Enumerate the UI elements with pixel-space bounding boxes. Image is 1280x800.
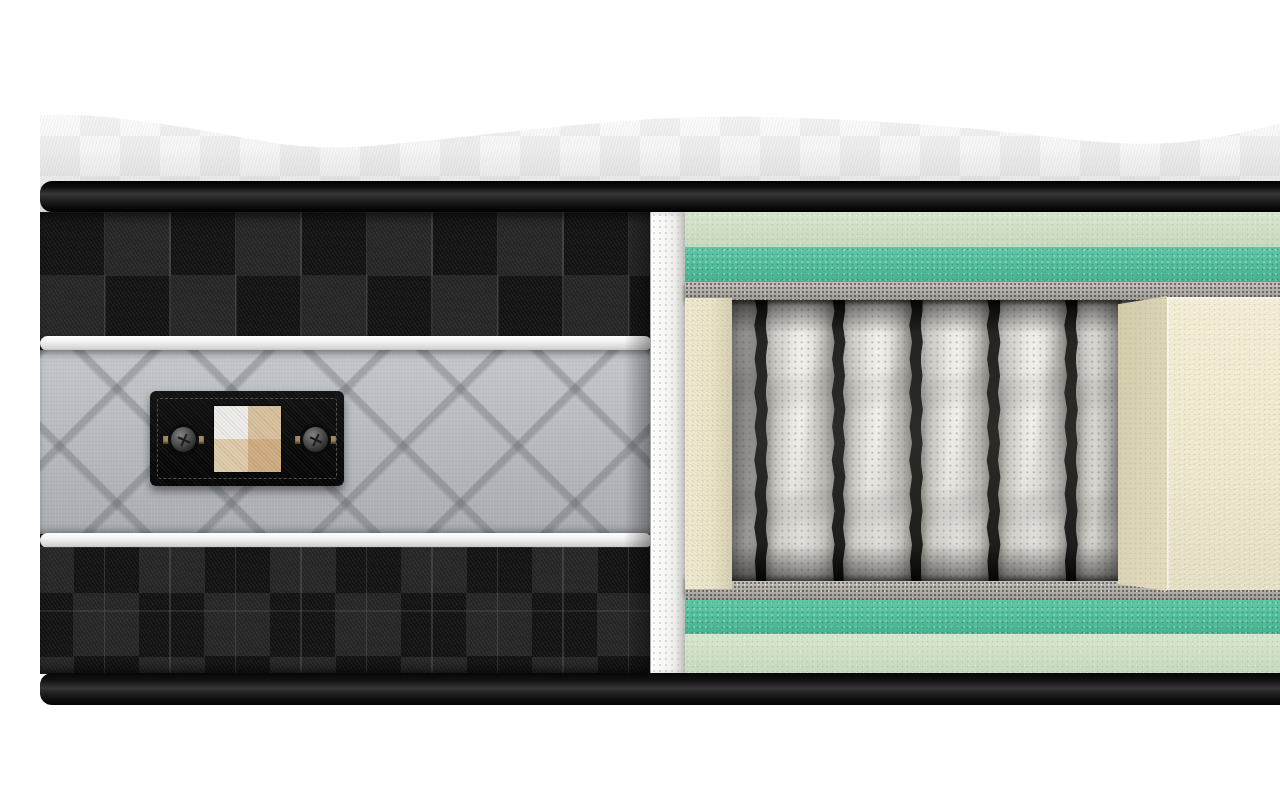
- swatch-quadrant-bottom-right: [248, 439, 282, 472]
- encasement-block-shadow: [1094, 300, 1122, 581]
- layer-comfort-foam-mint-top: [685, 212, 1280, 247]
- button-tab-icon: [295, 436, 303, 444]
- gray-quilted-band: [40, 350, 652, 534]
- button-tab-icon: [328, 436, 336, 444]
- checker-fabric-band-top: [40, 212, 652, 338]
- foam-rail-left: [685, 298, 732, 589]
- button-tab-icon: [196, 436, 204, 444]
- bottom-border-rim: [40, 673, 1280, 705]
- fabric-swatch: [214, 406, 281, 472]
- top-border-rim: [40, 181, 1280, 212]
- swatch-quadrant-top-left: [214, 406, 248, 439]
- foam-rail-shadow: [731, 300, 757, 581]
- button-tab-icon: [163, 436, 171, 444]
- tufting-button-icon: [303, 427, 328, 452]
- pocket-spring: [766, 300, 835, 581]
- pocket-spring: [921, 300, 990, 581]
- care-label: [150, 391, 344, 486]
- foam-encasement-front-face: [1167, 297, 1280, 590]
- layer-transition-foam-teal-top: [685, 247, 1280, 282]
- swatch-quadrant-top-right: [248, 406, 282, 439]
- side-panel-left: [40, 212, 652, 674]
- swatch-quadrant-bottom-left: [214, 439, 248, 472]
- cut-edge-fabric-strip: [650, 212, 686, 674]
- white-piping-top: [40, 336, 652, 351]
- pocket-spring: [998, 300, 1067, 581]
- mattress-cutaway-photo: [40, 16, 1280, 800]
- white-piping-bottom: [40, 533, 652, 548]
- panel-edge-shadow: [624, 212, 652, 674]
- layer-base-foam-mint-bottom: [685, 634, 1280, 674]
- tufting-button-icon: [171, 427, 196, 452]
- foam-encasement-side-face: [1118, 296, 1167, 591]
- checker-fabric-band-bottom: [40, 547, 652, 674]
- pocket-spring: [843, 300, 912, 581]
- label-button-left: [171, 427, 196, 452]
- layer-transition-foam-teal-bottom: [685, 600, 1280, 634]
- label-button-right: [303, 427, 328, 452]
- cutaway-interior: [685, 212, 1280, 674]
